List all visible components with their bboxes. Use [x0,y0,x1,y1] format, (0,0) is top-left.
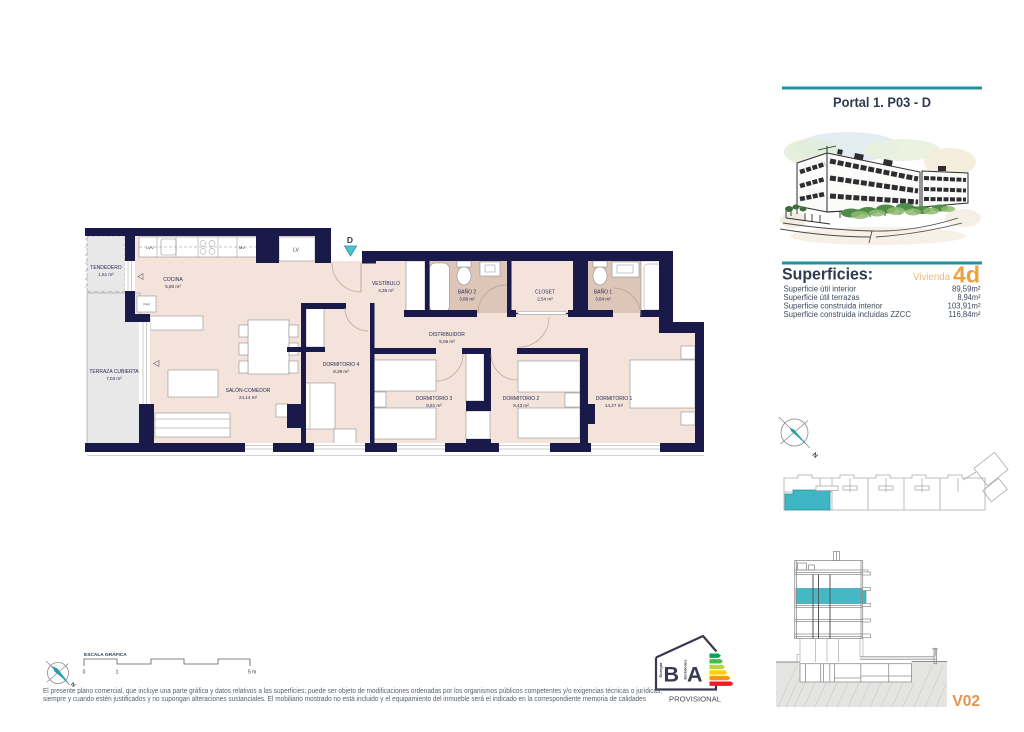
svg-text:5,06 m²: 5,06 m² [439,339,455,344]
svg-text:SALÓN-COMEDOR: SALÓN-COMEDOR [226,387,271,394]
svg-text:14,27 m²: 14,27 m² [605,403,624,408]
svg-text:4,35 m²: 4,35 m² [378,288,394,293]
svg-text:LV: LV [293,248,299,254]
svg-text:DORMITORIO 4: DORMITORIO 4 [323,362,360,368]
svg-text:Superficies:: Superficies: [782,266,873,284]
svg-text:ESCALA GRÁFICA: ESCALA GRÁFICA [84,651,127,658]
svg-text:1: 1 [116,670,119,676]
svg-text:A: A [687,663,703,687]
svg-text:DORMITORIO 1: DORMITORIO 1 [596,396,633,402]
svg-text:3,86 m²: 3,86 m² [459,297,475,302]
svg-text:F+H: F+H [143,303,150,307]
svg-text:B: B [664,663,680,687]
svg-text:DISTRIBUIDOR: DISTRIBUIDOR [429,332,465,338]
svg-text:MV: MV [239,245,245,250]
svg-text:5,80 m²: 5,80 m² [165,284,181,289]
svg-text:5 m: 5 m [248,670,256,676]
svg-text:N: N [811,451,819,459]
svg-text:8,43 m²: 8,43 m² [513,403,529,408]
svg-text:COCINA: COCINA [163,277,183,283]
svg-text:116,84m²: 116,84m² [949,310,981,319]
svg-text:DORMITORIO 2: DORMITORIO 2 [503,396,540,402]
svg-text:PROVISIONAL: PROVISIONAL [669,697,721,704]
svg-text:8,81 m²: 8,81 m² [426,403,442,408]
svg-text:8,39 m²: 8,39 m² [333,369,349,374]
svg-text:Superficie construida incluida: Superficie construida incluidas ZZCC [784,310,912,319]
svg-text:2,54 m²: 2,54 m² [537,297,553,302]
svg-text:7,03 m²: 7,03 m² [106,376,122,381]
svg-text:3,84 m²: 3,84 m² [595,297,611,302]
svg-text:Energía: Energía [658,662,663,677]
svg-text:TENDEDERO: TENDEDERO [90,265,122,271]
svg-text:VESTÍBULO: VESTÍBULO [372,280,400,287]
svg-text:Portal 1. P03 - D: Portal 1. P03 - D [833,95,931,111]
svg-text:1,51 m²: 1,51 m² [98,272,114,277]
svg-text:siempre y cuando estén justifi: siempre y cuando estén justificados y no… [43,696,647,703]
svg-text:0: 0 [83,670,86,676]
svg-text:El presente plano comercial, q: El presente plano comercial, que incluye… [43,688,662,695]
svg-text:BAÑO 2: BAÑO 2 [458,289,477,296]
svg-text:D: D [347,235,353,245]
svg-text:DORMITORIO 3: DORMITORIO 3 [416,396,453,402]
svg-text:LVV: LVV [146,245,154,250]
svg-text:CLOSET: CLOSET [535,290,555,296]
svg-text:BAÑO 1: BAÑO 1 [594,289,613,296]
svg-text:24,14 m²: 24,14 m² [239,395,258,400]
svg-text:V02: V02 [952,693,980,710]
svg-text:TERRAZA CUBIERTA: TERRAZA CUBIERTA [89,369,139,375]
svg-text:Vivienda: Vivienda [913,271,950,283]
